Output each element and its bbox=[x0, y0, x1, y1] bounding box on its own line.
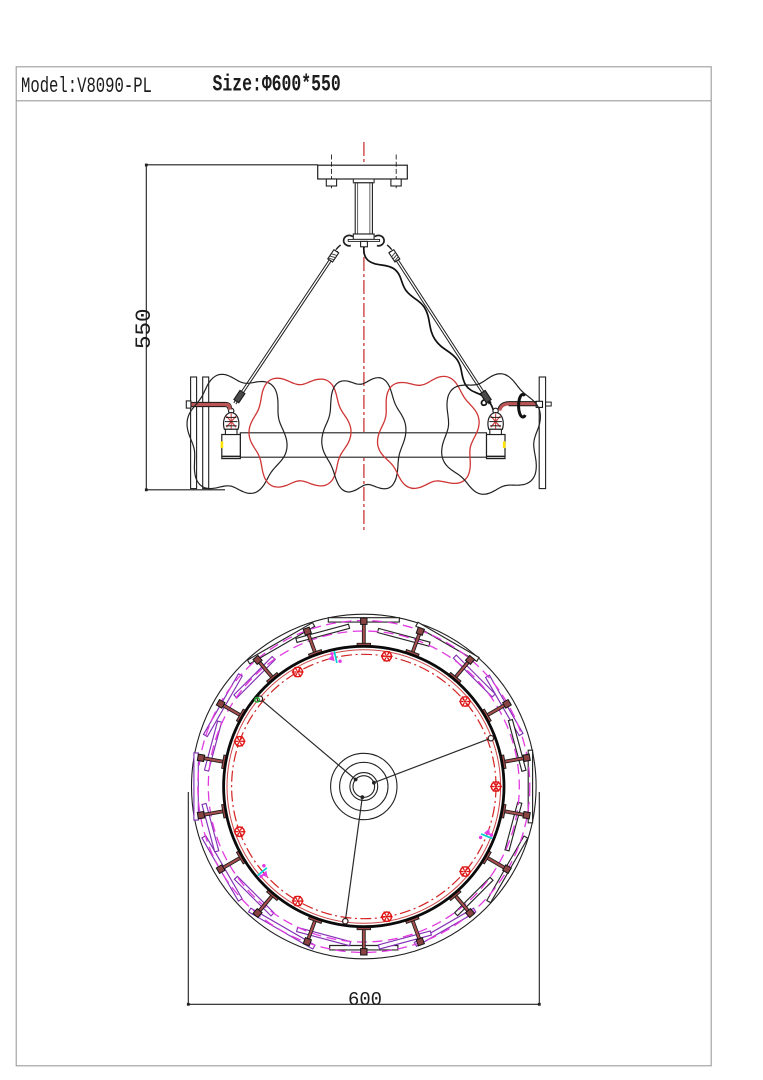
svg-text:550: 550 bbox=[131, 308, 157, 349]
svg-text:600: 600 bbox=[348, 989, 382, 1011]
svg-text:Size:Φ600*550: Size:Φ600*550 bbox=[213, 72, 341, 99]
svg-text:Model:V8090-PL: Model:V8090-PL bbox=[21, 74, 152, 99]
